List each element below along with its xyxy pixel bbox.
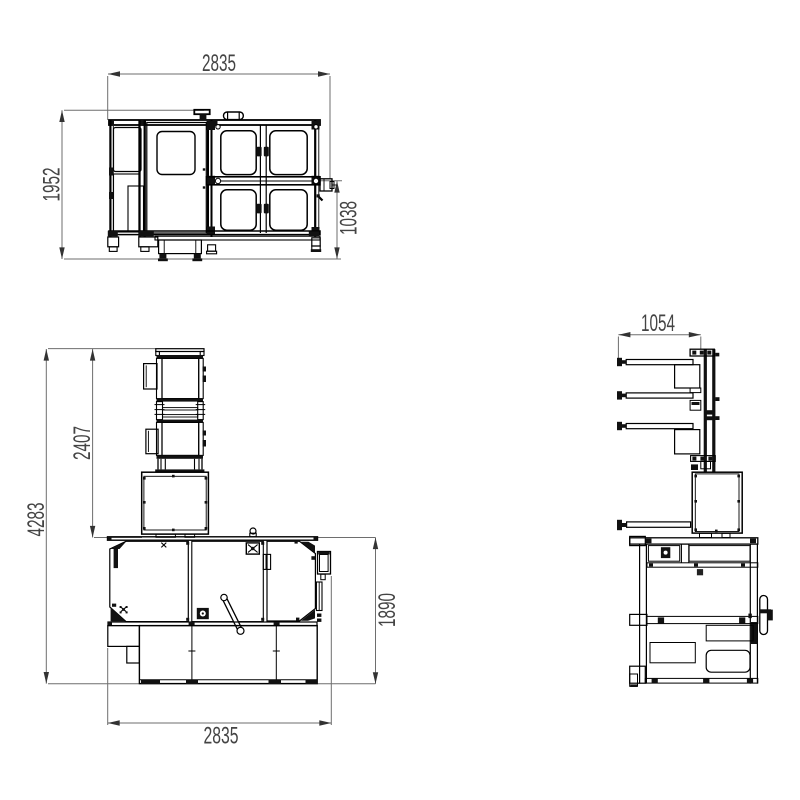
svg-text:1038: 1038 xyxy=(336,201,363,235)
svg-text:1890: 1890 xyxy=(374,593,401,627)
svg-text:2407: 2407 xyxy=(69,426,96,460)
svg-text:1054: 1054 xyxy=(641,310,675,337)
svg-text:2835: 2835 xyxy=(202,50,236,77)
svg-text:1952: 1952 xyxy=(39,168,66,202)
svg-text:4283: 4283 xyxy=(23,503,50,537)
svg-text:2835: 2835 xyxy=(204,723,239,750)
